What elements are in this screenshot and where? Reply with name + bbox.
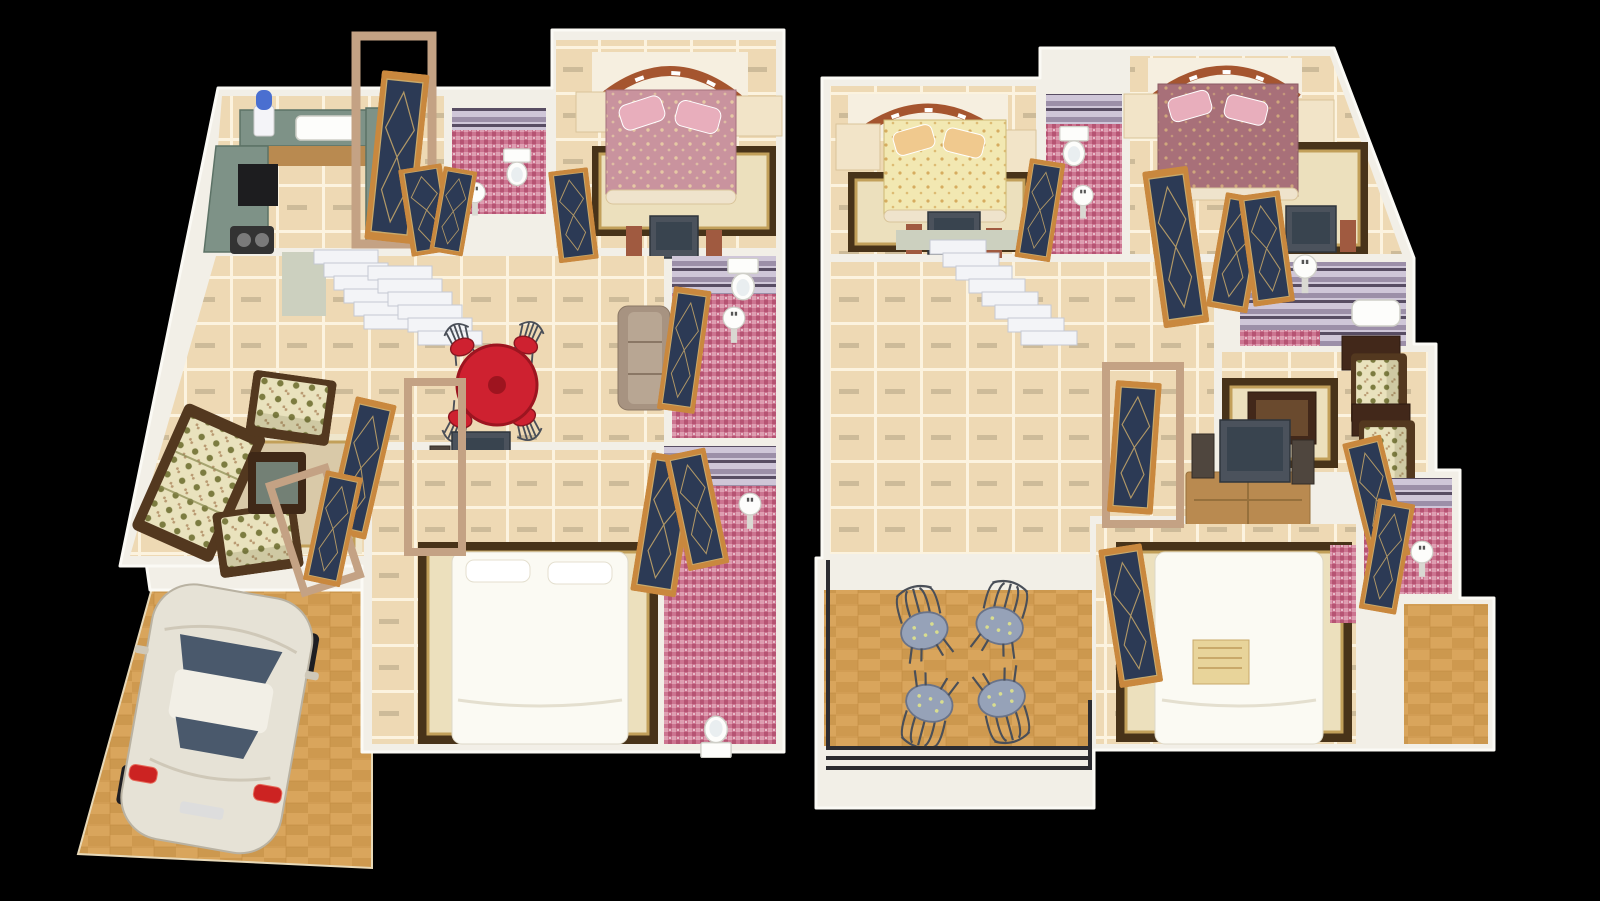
water-purifier bbox=[254, 90, 274, 136]
floor-plan-render bbox=[0, 0, 1600, 901]
small-balcony bbox=[1404, 604, 1488, 744]
double-bed-pink bbox=[606, 90, 736, 204]
double-bed-white bbox=[1155, 552, 1323, 744]
folded-blanket bbox=[1193, 640, 1249, 684]
bedside-cabinet bbox=[1124, 94, 1160, 138]
bedside-cabinet bbox=[836, 124, 880, 170]
floor-plan-canvas bbox=[0, 0, 1600, 901]
bath-tub bbox=[1352, 300, 1400, 326]
balcony bbox=[824, 560, 1092, 770]
kitchen-stove bbox=[238, 164, 278, 206]
double-bed-white bbox=[452, 552, 628, 744]
bedside-cabinet bbox=[1298, 100, 1334, 144]
bedroom-bottom bbox=[372, 450, 658, 744]
armchair bbox=[245, 369, 337, 446]
bedside-cabinet bbox=[736, 96, 782, 136]
double-bed-yellow bbox=[884, 120, 1006, 222]
glass-door bbox=[1107, 380, 1162, 515]
kitchen-sink bbox=[296, 116, 358, 140]
